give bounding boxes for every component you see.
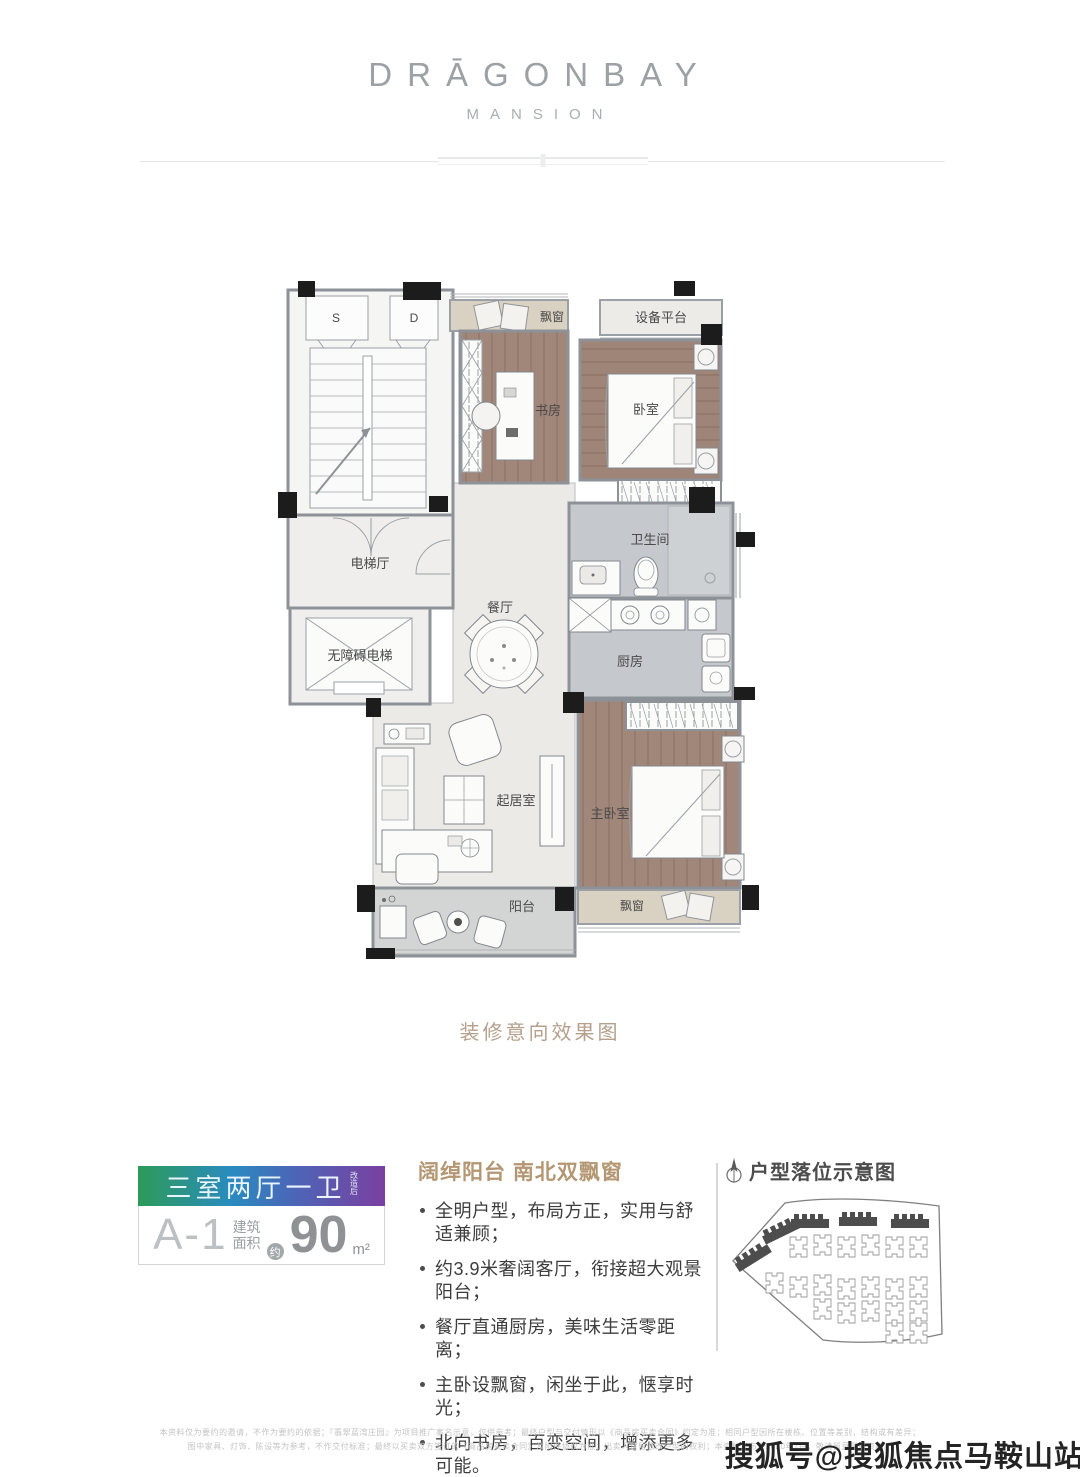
bullet-dot: [420, 1208, 425, 1213]
highlights-title: 阔绰阳台 南北双飘窗: [418, 1156, 710, 1186]
stair-d-label: D: [410, 311, 419, 325]
header-divider: [140, 156, 945, 166]
stairwell: S D 上 下: [288, 290, 453, 533]
balcony: 阳台: [373, 888, 575, 956]
kitchen: 厨房: [569, 598, 733, 698]
unit-layout-note: 改造后: [350, 1171, 358, 1201]
brochure-page: DRĀGONBAY MANSION: [0, 0, 1080, 1477]
highlight-text: 约3.9米奢阔客厅，衔接超大观景阳台；: [435, 1258, 710, 1303]
area-label-line2: 面积: [233, 1235, 261, 1251]
bay-window-top: 飘窗: [450, 294, 568, 332]
area-unit: m²: [352, 1241, 370, 1258]
bullet-dot: [420, 1382, 425, 1387]
highlight-item: 约3.9米奢阔客厅，衔接超大观景阳台；: [418, 1258, 710, 1303]
highlight-text: 餐厅直通厨房，美味生活零距离；: [435, 1316, 710, 1361]
area-label-line1: 建筑: [233, 1219, 261, 1235]
unit-card: 三室两厅一卫 改造后 A-1 建筑 面积 约 90 m²: [138, 1166, 385, 1265]
area-label: 建筑 面积: [233, 1219, 261, 1251]
unit-area-row: A-1 建筑 面积 约 90 m²: [138, 1206, 385, 1265]
plan-caption: 装修意向效果图: [0, 1016, 1080, 1045]
bay-window-bottom-label: 飘窗: [620, 899, 644, 913]
highlight-item: 餐厅直通厨房，美味生活零距离；: [418, 1316, 710, 1361]
bedroom-label: 卧室: [633, 402, 659, 417]
bullet-dot: [420, 1324, 425, 1329]
brand-name: DRĀGONBAY: [0, 56, 1080, 94]
elevator-hall-label: 电梯厅: [350, 556, 389, 571]
kitchen-label: 厨房: [617, 654, 643, 669]
divider-line-left: [140, 161, 438, 162]
highlight-text: 主卧设飘窗，闲坐于此，惬享时光；: [435, 1374, 710, 1419]
area-approx-badge: 约: [267, 1243, 284, 1260]
location-title: 户型落位示意图: [749, 1156, 896, 1185]
brand-logo: DRĀGONBAY MANSION: [0, 56, 1080, 123]
master-bedroom-label: 主卧室: [590, 806, 629, 821]
location-header: 户型落位示意图: [703, 1156, 985, 1185]
highlight-item: 主卧设飘窗，闲坐于此，惬享时光；: [418, 1374, 710, 1419]
study-room: 书房: [460, 331, 568, 483]
floor-plan-drawing: S D 上 下 电梯厅 无障碍电梯: [278, 278, 764, 974]
brand-subtitle: MANSION: [0, 106, 1080, 123]
master-bedroom: 主卧室: [578, 700, 744, 888]
bathroom: 卫生间: [569, 503, 740, 598]
stair-s-label: S: [332, 311, 340, 325]
balcony-label: 阳台: [509, 899, 535, 914]
accessible-elevator: 无障碍电梯: [290, 608, 430, 704]
watermark: 搜狐号@搜狐焦点马鞍山站: [725, 1433, 1080, 1475]
site-plan-map: [703, 1193, 985, 1351]
floor-plan: S D 上 下 电梯厅 无障碍电梯: [278, 278, 764, 974]
area-value: 90: [290, 1209, 348, 1261]
elevator-hall: 电梯厅: [288, 515, 453, 608]
unit-layout-banner: 三室两厅一卫 改造后: [138, 1166, 385, 1206]
unit-layout-text: 三室两厅一卫: [165, 1168, 345, 1205]
bay-window-top-label: 飘窗: [540, 310, 564, 324]
divider-ornament: [438, 157, 648, 165]
accessible-elevator-label: 无障碍电梯: [327, 648, 392, 663]
study-label: 书房: [535, 403, 561, 418]
unit-code: A-1: [153, 1210, 227, 1260]
divider-line-right: [648, 161, 946, 162]
bathroom-label: 卫生间: [630, 532, 669, 547]
highlight-text: 全明户型，布局方正，实用与舒适兼顾；: [435, 1200, 710, 1245]
compass-icon: [725, 1158, 743, 1184]
location-panel: 户型落位示意图: [703, 1156, 985, 1356]
bullet-dot: [420, 1266, 425, 1271]
highlight-item: 全明户型，布局方正，实用与舒适兼顾；: [418, 1200, 710, 1245]
equipment-platform-label: 设备平台: [635, 310, 687, 325]
dining-label: 餐厅: [487, 600, 513, 615]
living-label: 起居室: [496, 793, 535, 808]
